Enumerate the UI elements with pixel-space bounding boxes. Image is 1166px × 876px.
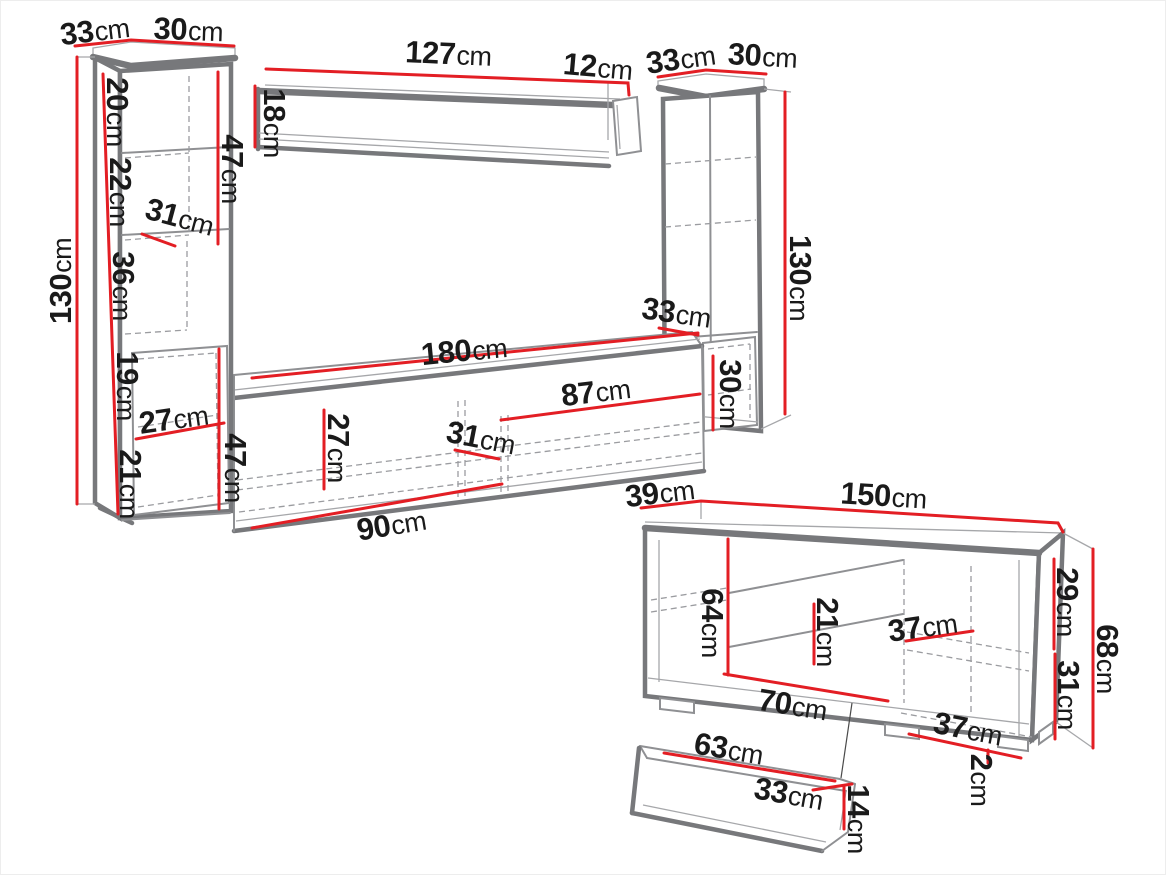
furniture-dimensions-diagram: 33cm 30cm 130cm 20cm 22cm 36cm 19cm 21cm… bbox=[0, 0, 1166, 875]
dim-label-lc-sec3: 36cm bbox=[106, 251, 141, 320]
dim-label-lc-height: 130cm bbox=[43, 238, 78, 324]
dim-label-tv-height: 47cm bbox=[218, 433, 253, 502]
wall-shelf-top-band bbox=[259, 91, 613, 105]
dim-label-rc-height: 130cm bbox=[783, 235, 818, 321]
right-cabinet-tick-bottom bbox=[761, 415, 791, 429]
dim-label-sb-height: 68cm bbox=[1090, 624, 1125, 693]
dim-label-sb-bottom-h: 31cm bbox=[1051, 660, 1086, 729]
left-cabinet bbox=[77, 42, 235, 523]
wall-shelf bbox=[258, 81, 641, 166]
dim-label-sb-drawer-h: 21cm bbox=[810, 597, 845, 666]
dim-label-lc-sec5: 21cm bbox=[113, 449, 148, 518]
dim-label-ws-length: 127cm bbox=[405, 34, 493, 73]
diagram-svg: 33cm 30cm 130cm 20cm 22cm 36cm 19cm 21cm… bbox=[1, 1, 1166, 876]
dim-label-rc-niche-h: 30cm bbox=[713, 359, 748, 428]
wall-shelf-bottom-band bbox=[258, 147, 609, 166]
dim-label-sb-top-h: 29cm bbox=[1050, 567, 1085, 636]
dim-label-lc-width: 30cm bbox=[153, 11, 224, 48]
dim-label-lc-sec2: 22cm bbox=[103, 157, 138, 226]
sideboard-tick-top-right bbox=[1063, 533, 1093, 549]
dim-label-tv-inner-h: 27cm bbox=[321, 413, 356, 482]
dim-label-rc-width: 30cm bbox=[727, 36, 798, 75]
dim-label-sb-width: 150cm bbox=[840, 475, 928, 515]
dim-label-sb-foot: 2cm bbox=[964, 754, 999, 807]
dim-label-sb-door-h: 64cm bbox=[695, 588, 730, 657]
dim-label-ws-height: 18cm bbox=[257, 88, 292, 157]
dim-label-lc-door: 47cm bbox=[215, 134, 250, 203]
dim-label-ws-end: 12cm bbox=[562, 46, 634, 87]
dim-label-lc-sec1: 20cm bbox=[100, 77, 135, 146]
right-cabinet-tick-top bbox=[764, 89, 791, 92]
dim-label-dr-height: 14cm bbox=[841, 784, 876, 853]
